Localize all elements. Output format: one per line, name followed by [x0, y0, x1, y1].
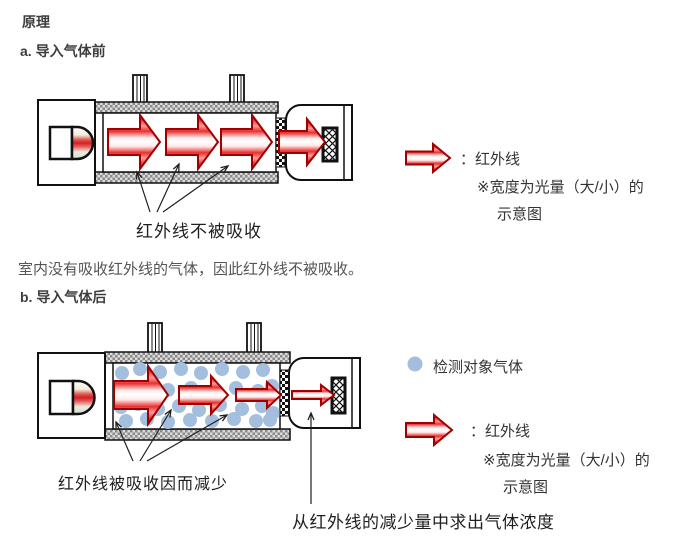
legend-b-infrared-label: ：红外线 [470, 420, 530, 441]
section-a-heading: a. 导入气体前 [20, 41, 106, 61]
lamp-body-icon [50, 381, 73, 414]
legend-b-gas-label: 检测对象气体 [433, 356, 523, 377]
diagram-a [38, 75, 450, 212]
legend-infrared-arrow-icon-a [406, 144, 450, 172]
light-source-a [38, 100, 95, 185]
bottom-annotation: 从红外线的减少量中求出气体浓度 [292, 508, 555, 533]
legend-a-note-line1: ※宽度为光量（大/小）的 [477, 176, 644, 197]
optical-window-b [280, 370, 289, 416]
gas-pipe-icons-b [148, 323, 261, 353]
page: 原理 a. 导入气体前 红外线不被吸收 ：红外线 ※宽度为光量（大/小）的 示意… [0, 0, 695, 547]
legend-b-note-line2: 示意图 [503, 476, 548, 497]
detector-element-a [323, 128, 337, 161]
diagram-a-label: 红外线不被吸收 [136, 217, 262, 242]
light-source-b [38, 353, 105, 438]
diagram-b-label: 红外线被吸收因而减少 [58, 470, 228, 494]
lamp-body-icon [50, 127, 72, 159]
legend-b-note-line1: ※宽度为光量（大/小）的 [483, 449, 650, 470]
legend-a-note-line2: 示意图 [497, 203, 542, 224]
lamp-emitter-icon [73, 381, 95, 414]
gas-pipe-icons-a [133, 75, 244, 103]
section-a-description: 室内没有吸收红外线的气体，因此红外线不被吸收。 [18, 258, 363, 279]
page-title: 原理 [22, 12, 50, 32]
legend-gas-dot-icon [408, 357, 423, 372]
lamp-emitter-icon [72, 127, 93, 159]
legend-infrared-arrow-icon-b [406, 415, 452, 445]
section-b-heading: b. 导入气体后 [20, 287, 106, 307]
legend-a-infrared-label: ：红外线 [460, 148, 520, 169]
